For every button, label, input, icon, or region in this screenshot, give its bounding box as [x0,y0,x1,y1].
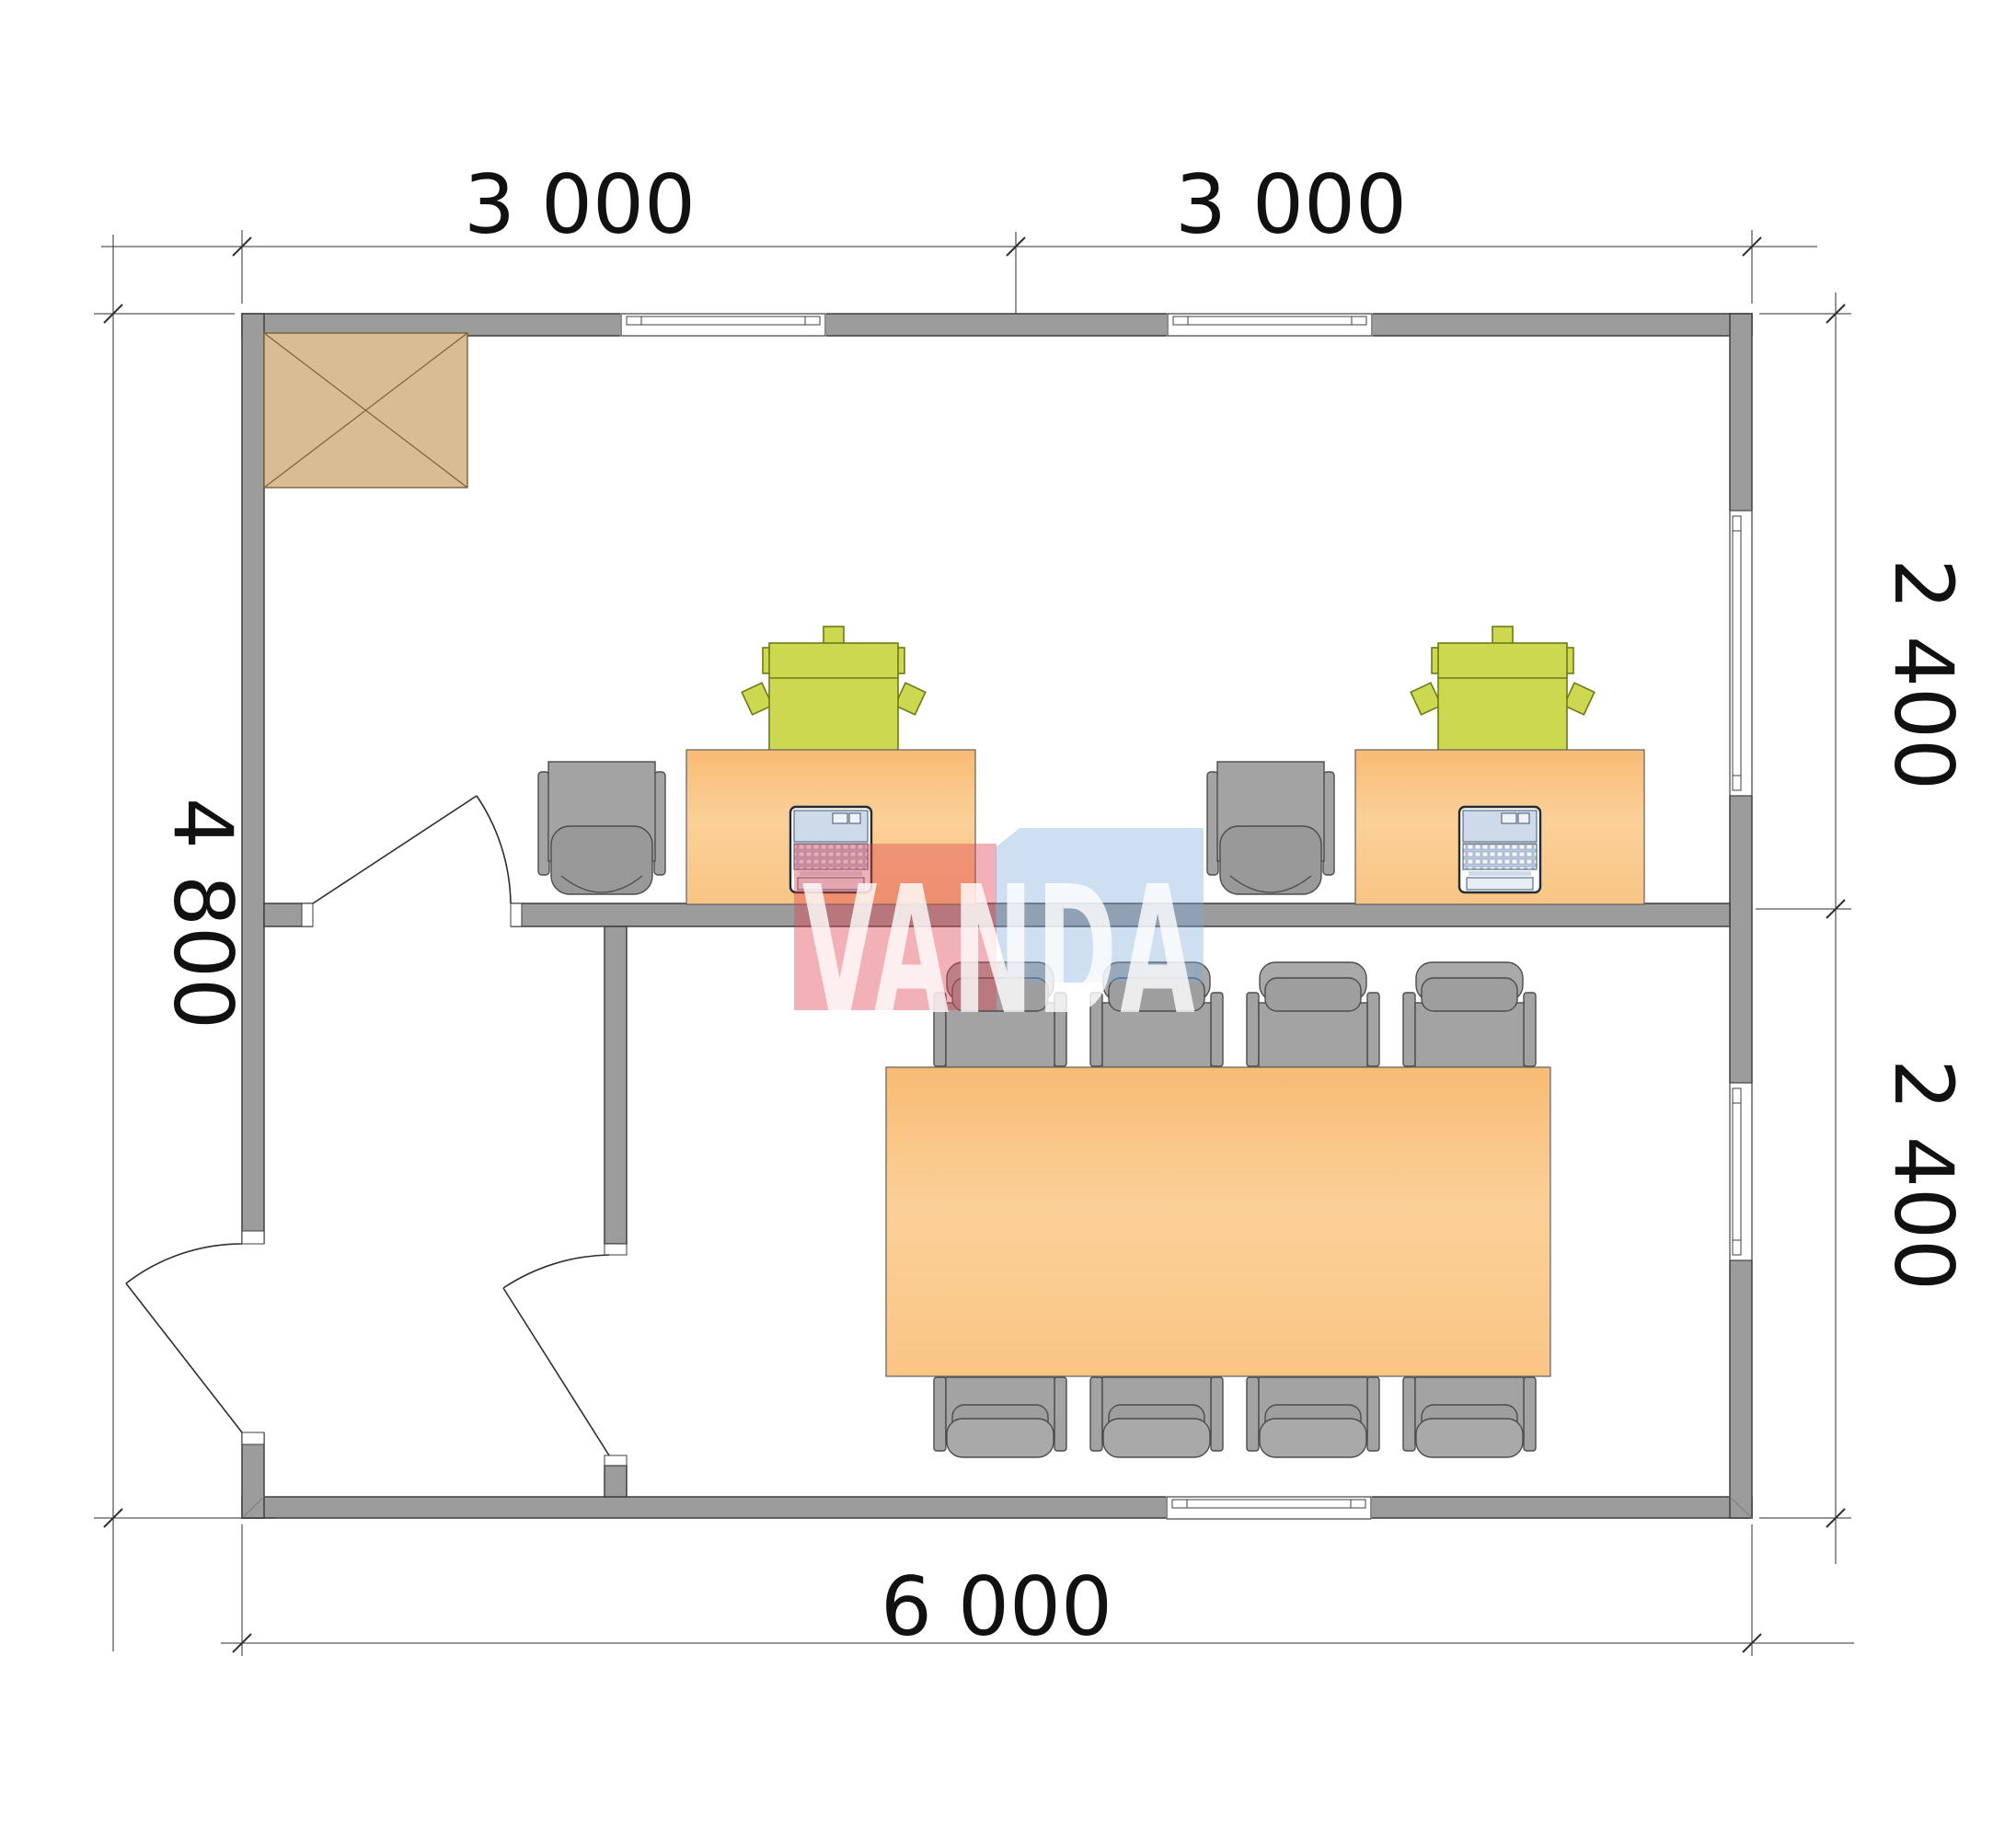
floor-plan-canvas: 3 000 3 000 6 000 4 800 2 400 2 400 VAND… [0,0,2016,1840]
partition-vestibule-stub [605,1466,627,1497]
watermark: VANDA [794,828,1204,1054]
window-right-upper [1730,511,1752,796]
meeting-chair [1247,1377,1379,1457]
dim-right-lower: 2 400 [1876,1059,1971,1291]
window-bottom [1167,1497,1371,1519]
partition-vestibule-upper [605,926,627,1244]
window-right-lower [1730,1083,1752,1260]
meeting-chair [1247,962,1379,1067]
ventilation-shaft [264,333,467,488]
dim-right-upper: 2 400 [1876,558,1971,790]
meeting-chair [1403,1377,1536,1457]
wall-top [242,314,1752,336]
meeting-chair [1090,1377,1223,1457]
window-top-left [621,314,825,336]
meeting-chair [1403,962,1536,1067]
wall-right [1730,314,1752,1518]
meeting-table [886,1067,1550,1376]
page: { "watermark": { "text": "VANDA" }, "dim… [0,0,2016,1840]
watermark-text: VANDA [802,848,1199,1054]
dim-top-left: 3 000 [464,157,696,252]
meeting-chairs-bottom [934,1377,1536,1457]
dim-bottom: 6 000 [881,1559,1112,1654]
wall-bottom [242,1497,1752,1518]
dim-left: 4 800 [156,798,250,1029]
workstation-2 [1207,627,1644,904]
dim-top-right: 3 000 [1175,157,1407,252]
meeting-chair [934,1377,1066,1457]
window-top-right [1168,314,1372,336]
